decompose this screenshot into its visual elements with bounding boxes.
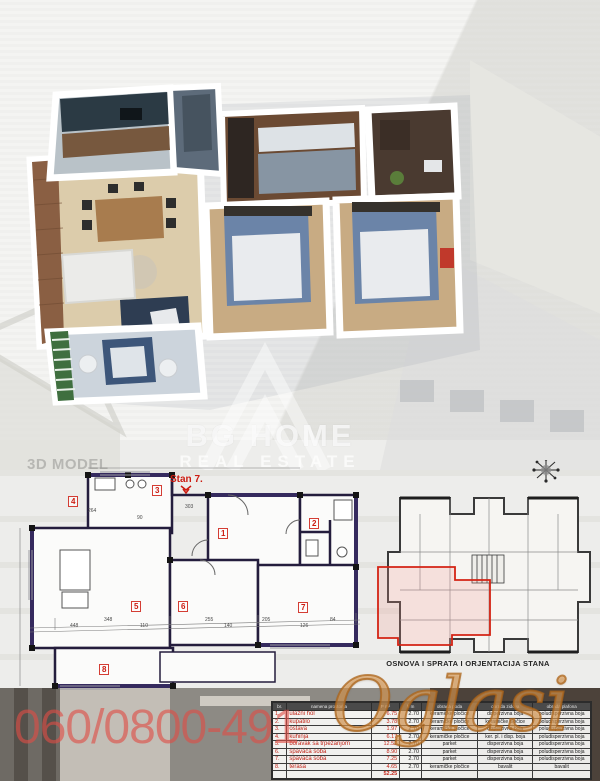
- room-marker-6: 6: [178, 601, 188, 612]
- bedroom-2: [336, 196, 460, 335]
- bathroom: [368, 106, 458, 199]
- duvet-1: [232, 233, 302, 301]
- terrace: [48, 326, 204, 402]
- unit-pointer-icon: [180, 485, 192, 494]
- dim-label: 84: [330, 618, 336, 623]
- room-marker-1: 1: [218, 528, 228, 539]
- table-row: 6.spavaća soba8.902.70parketdisperzivna …: [272, 748, 591, 756]
- building-plan: [378, 498, 590, 652]
- dim-label: 348: [104, 618, 112, 623]
- dim-label: 110: [140, 624, 148, 629]
- kitchen: [50, 88, 174, 178]
- dim-label: 126: [300, 624, 308, 629]
- table-cell: poludisperzivna boja: [533, 748, 591, 756]
- table-cell: disperzivna boja: [478, 756, 533, 764]
- dim-label: 205: [262, 618, 270, 623]
- dim-label: 90: [137, 516, 143, 521]
- headboard-1: [224, 206, 312, 216]
- table-cell: 8.: [272, 763, 287, 771]
- table-cell: parket: [422, 748, 478, 756]
- phone-number-watermark: 060/0800-491: [14, 700, 298, 755]
- table-cell: 2.70: [400, 756, 422, 764]
- duvet-2: [360, 229, 430, 299]
- table-cell: 2.70: [400, 748, 422, 756]
- white-wardrobe: [258, 123, 355, 152]
- table-cell: 7.25: [371, 756, 400, 764]
- cooktop: [120, 108, 142, 120]
- room-marker-5: 5: [131, 601, 141, 612]
- table-cell: 2.70: [400, 763, 422, 771]
- unit-label: Stan 7.: [170, 474, 203, 494]
- compass-icon: [532, 460, 559, 483]
- room-marker-2: 2: [309, 518, 319, 529]
- table-cell: [400, 771, 422, 779]
- table-cell: spavaća soba: [287, 756, 371, 764]
- table-total-value: 52.25: [371, 771, 400, 779]
- room-marker-8: 8: [99, 664, 109, 675]
- table-cell: bavalit: [478, 763, 533, 771]
- table-cell: [272, 771, 287, 779]
- wall-art: [440, 248, 454, 268]
- table-cell: 4.65: [371, 763, 400, 771]
- table-cell: poludisperzivna boja: [533, 756, 591, 764]
- stairwell: [472, 555, 504, 583]
- gray-wardrobe: [258, 149, 356, 194]
- room-marker-7: 7: [298, 602, 308, 613]
- table-row: 8.terasa4.652.70keramičke pločicebavalit…: [272, 763, 591, 771]
- dim-label: 448: [70, 624, 78, 629]
- table-cell: keramičke pločice: [422, 763, 478, 771]
- table-cell: [478, 771, 533, 779]
- listing-image: { "brand": { "line1": "BG HOME", "line2"…: [0, 0, 600, 781]
- dim-label: 303: [185, 505, 193, 510]
- table-cell: bavalit: [533, 763, 591, 771]
- dim-label: 140: [224, 624, 232, 629]
- dim-label: 255: [205, 618, 213, 623]
- dim-label: 264: [88, 509, 96, 514]
- oglasi-watermark: Oglasi: [332, 668, 569, 742]
- room-marker-4: 4: [68, 496, 78, 507]
- headboard-2: [352, 202, 440, 212]
- green-bin: [390, 171, 404, 185]
- table-cell: spavaća soba: [287, 748, 371, 756]
- table-cell: disperzivna boja: [478, 748, 533, 756]
- table-cell: parket: [422, 756, 478, 764]
- room-marker-3: 3: [152, 485, 162, 496]
- pouf-2: [159, 359, 177, 377]
- daybed-cushion: [110, 346, 147, 378]
- table-cell: terasa: [287, 763, 371, 771]
- apartment-3d-model: [0, 0, 600, 470]
- corridor: [222, 108, 364, 206]
- entry-closet: [170, 86, 222, 174]
- pouf-1: [79, 355, 97, 373]
- table-cell: 8.90: [371, 748, 400, 756]
- table-cell: [422, 771, 478, 779]
- bedroom-1: [206, 201, 330, 337]
- table-cell: 7.: [272, 756, 287, 764]
- dining-table: [95, 196, 164, 242]
- entry-door: [228, 118, 254, 198]
- table-cell: [533, 771, 591, 779]
- white-sofa: [62, 250, 135, 303]
- table-cell: [287, 771, 371, 779]
- sink: [424, 160, 442, 172]
- table-row: 7.spavaća soba7.252.70parketdisperzivna …: [272, 756, 591, 764]
- table-total-row: 52.25: [272, 771, 591, 779]
